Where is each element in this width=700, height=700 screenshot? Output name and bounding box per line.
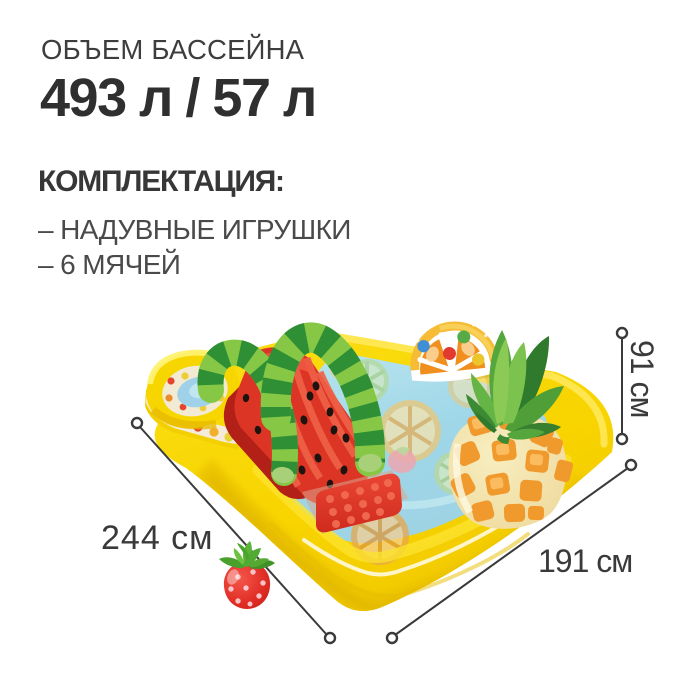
svg-text:91 см: 91 см — [624, 340, 660, 417]
svg-text:191 см: 191 см — [538, 543, 632, 579]
svg-text:244 см: 244 см — [101, 519, 214, 557]
